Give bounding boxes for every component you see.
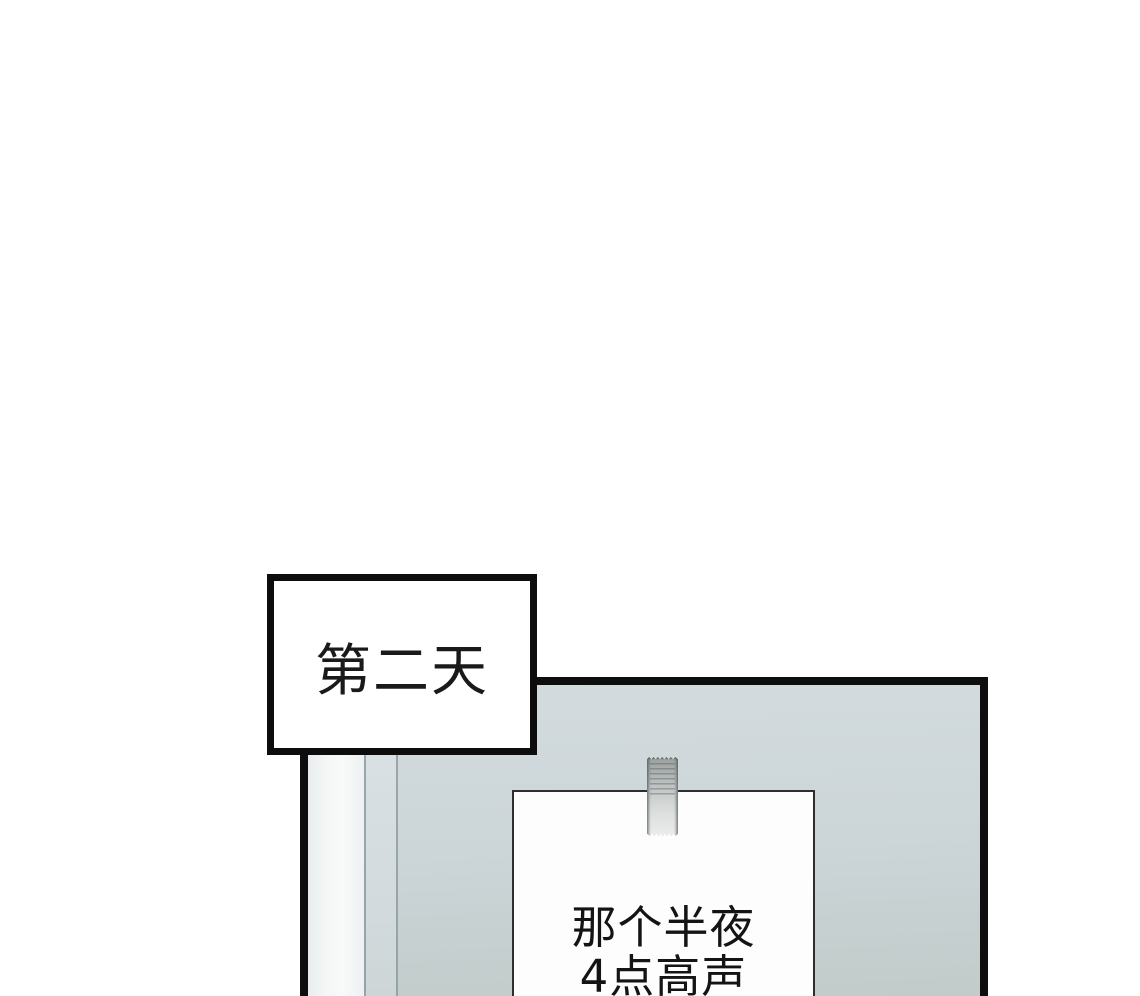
tape-texture: [650, 763, 675, 796]
caption-text: 第二天: [315, 622, 489, 707]
note-text: 那个半夜 4点高声: [514, 903, 813, 996]
note-text-line-2: 4点高声: [514, 952, 813, 996]
comic-page: 那个半夜 4点高声 第二天: [0, 0, 1140, 996]
caption-box: 第二天: [267, 574, 537, 755]
tape: [647, 757, 678, 836]
note-text-line-1: 那个半夜: [514, 903, 813, 952]
